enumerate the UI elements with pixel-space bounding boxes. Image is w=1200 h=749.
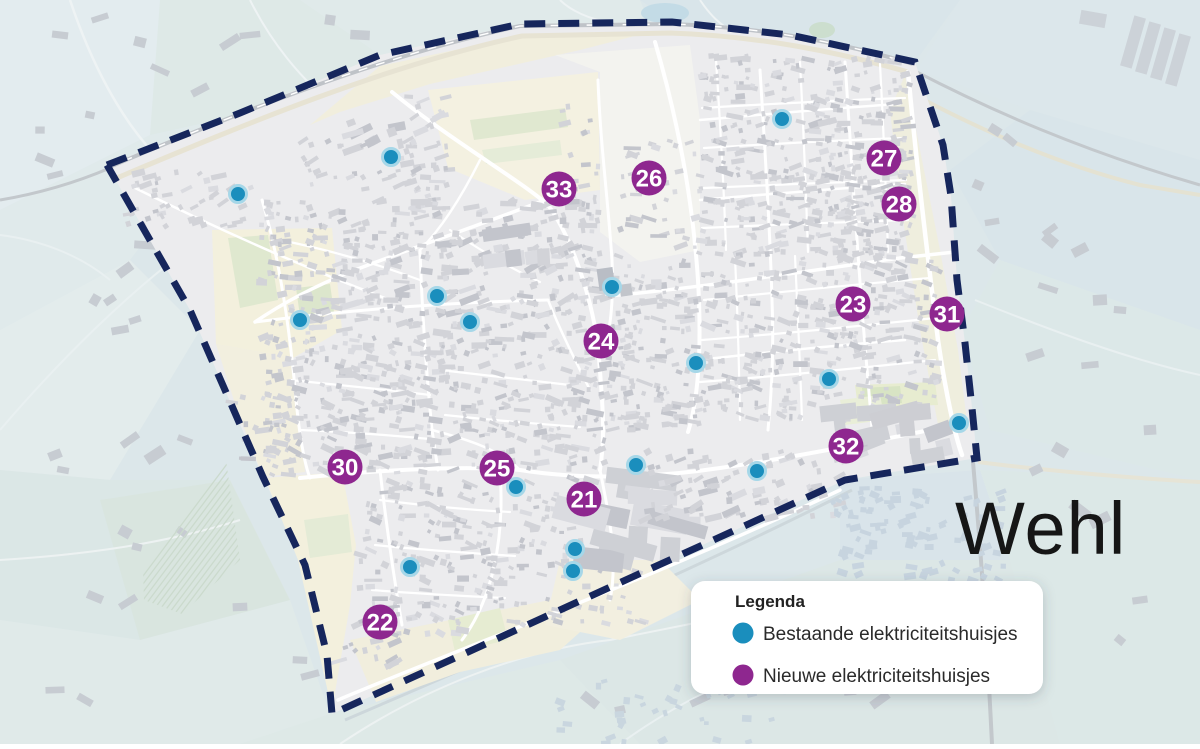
- svg-text:33: 33: [546, 177, 573, 204]
- svg-text:31: 31: [934, 302, 961, 329]
- svg-text:23: 23: [840, 292, 867, 319]
- svg-text:32: 32: [833, 434, 860, 461]
- svg-text:28: 28: [886, 192, 913, 219]
- svg-text:22: 22: [367, 610, 394, 637]
- svg-text:Wehl: Wehl: [955, 487, 1126, 570]
- svg-text:Legenda: Legenda: [735, 592, 805, 611]
- svg-text:Bestaande elektriciteitshuisje: Bestaande elektriciteitshuisjes: [763, 624, 1018, 645]
- svg-text:25: 25: [484, 456, 511, 483]
- svg-text:21: 21: [571, 487, 598, 514]
- svg-text:Nieuwe elektriciteitshuisjes: Nieuwe elektriciteitshuisjes: [763, 666, 990, 687]
- svg-text:26: 26: [636, 166, 663, 193]
- svg-text:27: 27: [871, 146, 898, 173]
- svg-text:30: 30: [332, 455, 359, 482]
- svg-text:24: 24: [588, 329, 615, 356]
